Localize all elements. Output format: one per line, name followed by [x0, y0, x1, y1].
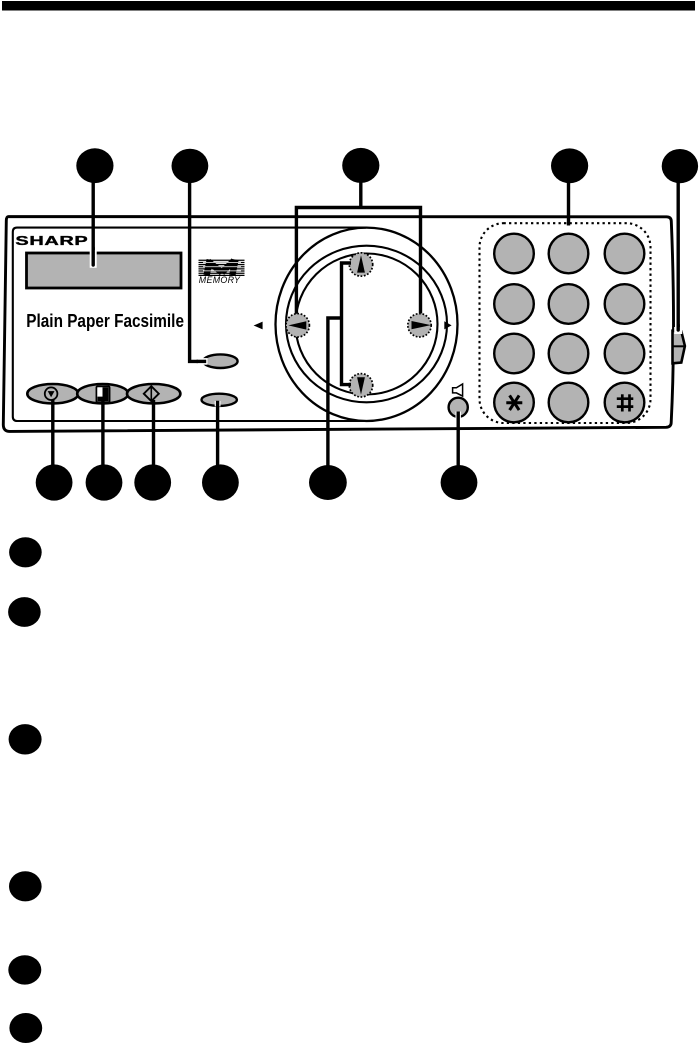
svg-text:SHARP: SHARP	[15, 233, 88, 248]
svg-text:MEMORY: MEMORY	[199, 275, 241, 285]
svg-text:Plain Paper Facsimile: Plain Paper Facsimile	[26, 311, 184, 331]
